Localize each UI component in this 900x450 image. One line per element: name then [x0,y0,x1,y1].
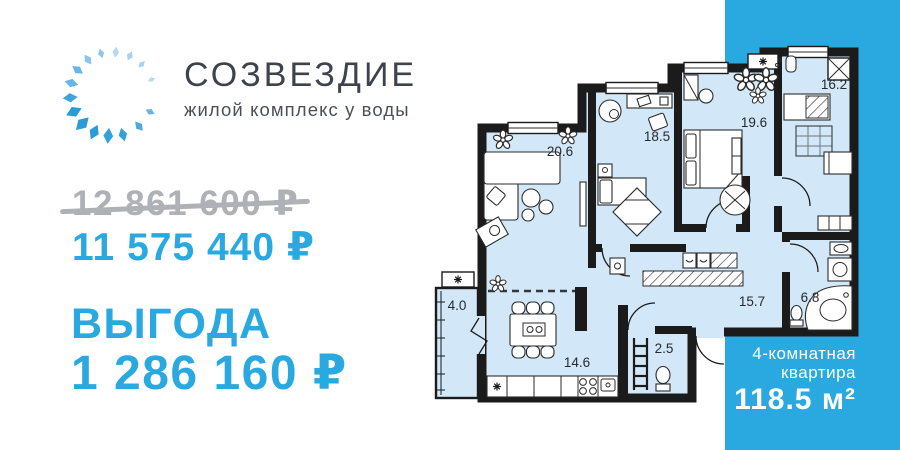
pillow-icon [686,161,696,185]
pillow-icon [686,134,696,158]
room-area-living: 20.6 [547,144,573,159]
toilet-icon [791,306,802,321]
room-area-balcony: 4.0 [448,298,467,313]
shoe-cabinet-icon [610,258,625,274]
constellation-ring-icon [56,40,168,152]
mattress-icon [806,96,828,118]
room-area-kitchen: 14.6 [564,355,590,370]
closet-icon [711,253,737,268]
brand-logo: СОЗВЕЗДИЕ жилой комплекс у воды [56,40,417,152]
closet-icon [697,253,710,268]
entrance-door-arc-icon [696,336,724,364]
entrance-gap [696,326,724,338]
pillow-icon [600,180,612,203]
nightstand-icon [598,164,612,177]
room-area-bedroom3: 16.2 [821,77,847,92]
brand-name: СОЗВЕЗДИЕ [184,58,417,92]
apartment-type-line2: квартира [781,363,856,382]
apartment-type-line1: 4-комнатная [752,344,856,363]
room-area-bathroom: 6.8 [801,290,820,305]
closet-icon [683,253,696,268]
chair-icon [541,346,554,358]
brand-tagline: жилой комплекс у воды [184,101,417,120]
room-area-hallway: 15.7 [739,294,765,309]
washing-machine-icon [828,258,852,281]
chair-icon [541,302,554,314]
toilet-icon [656,367,670,384]
floor-plan: 4-комнатная квартира 118.5 м² [430,0,900,450]
logo-sparkles [62,46,156,144]
room-area-wc: 2.5 [655,341,674,356]
chair-icon [512,302,525,314]
wardrobe-icon [643,271,743,286]
chair-icon [527,302,540,314]
sink-icon [830,242,852,255]
benefit-value: 1 286 160 ₽ [71,350,348,398]
chair-icon [527,346,540,358]
room-area-bedroom1: 18.5 [644,129,670,144]
desk-icon [824,152,852,174]
apartment-area: 118.5 м² [734,383,856,416]
boiler-icon [786,56,796,72]
promo-banner: { "brand": { "name": "СОЗВЕЗДИЕ", "tagli… [0,0,900,450]
balcony [436,272,478,398]
benefit-label: ВЫГОДА [71,303,272,346]
new-price: 11 575 440 ₽ [72,228,315,267]
pouf-icon [699,89,713,103]
chair-icon [512,346,525,358]
cabinet-icon [818,216,852,230]
radiator-icon [580,182,586,226]
room-area-bedroom2: 19.6 [741,115,767,130]
